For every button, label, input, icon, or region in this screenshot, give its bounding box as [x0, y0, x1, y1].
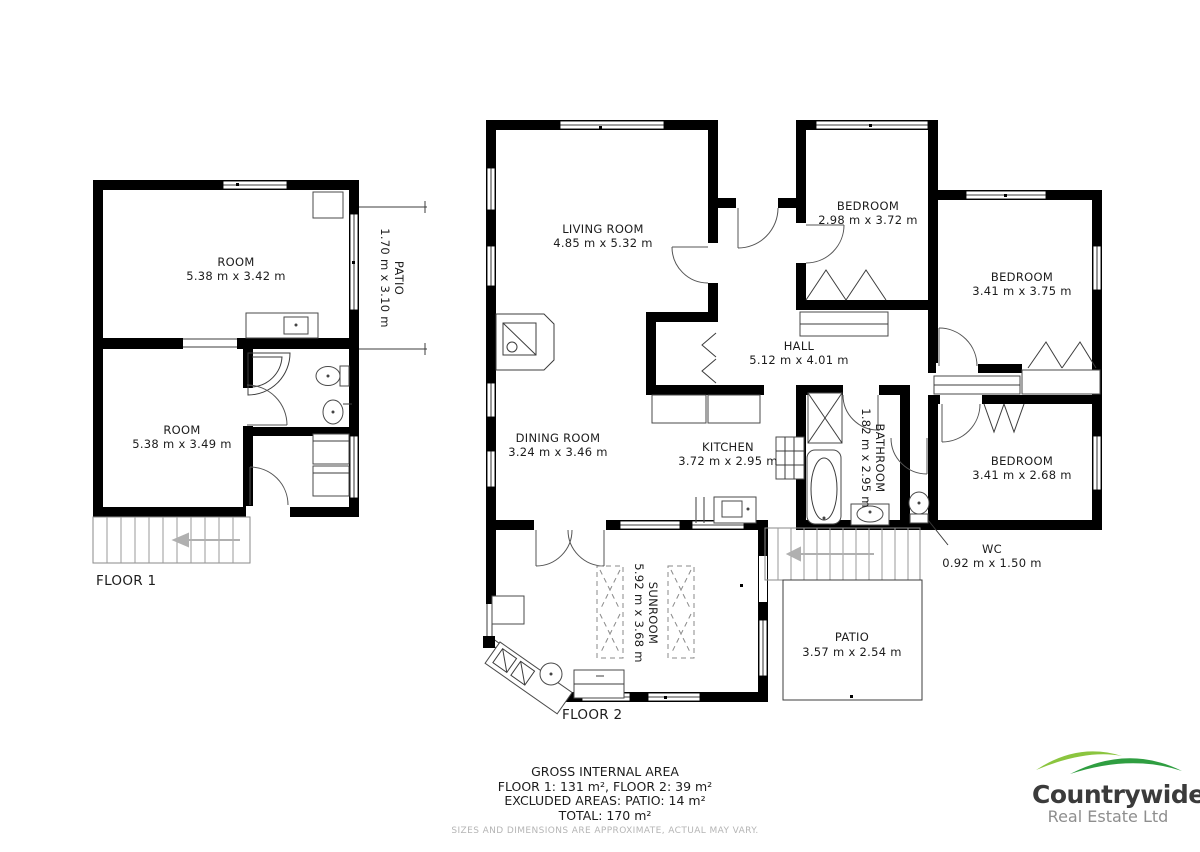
stairs-direction-arrow	[174, 534, 240, 546]
agency-logo: Countrywide Real Estate Ltd	[1032, 740, 1184, 826]
floor1-stairs	[93, 517, 250, 563]
sunroom-closet	[492, 596, 524, 624]
area-summary: GROSS INTERNAL AREA FLOOR 1: 131 m², FLO…	[385, 765, 825, 836]
hall-dims: 5.12 m x 4.01 m	[749, 353, 849, 367]
total-area-line: TOTAL: 170 m²	[385, 809, 825, 824]
bedroom-left-dims: 2.98 m x 3.72 m	[818, 213, 918, 227]
floor1-room-bottom-name: ROOM	[163, 423, 200, 437]
bathroom-name: BATHROOM	[873, 424, 887, 493]
sunroom-name: SUNROOM	[646, 582, 660, 644]
sunroom-sink-fixture	[540, 663, 562, 685]
front-door	[738, 208, 778, 248]
kitchen-dims: 3.72 m x 2.95 m	[678, 454, 778, 468]
floor2-label: FLOOR 2	[562, 707, 622, 723]
bedroom-bottom-right-bifold	[984, 404, 1024, 432]
floor1-plan: ROOM 5.38 m x 3.42 m ROOM 5.38 m x 3.49 …	[93, 180, 427, 589]
living-room-door	[672, 247, 708, 283]
disclaimer-text: SIZES AND DIMENSIONS ARE APPROXIMATE, AC…	[385, 826, 825, 836]
bedroom-bottom-right-dims: 3.41 m x 2.68 m	[972, 468, 1072, 482]
floor1-room-top-dims: 5.38 m x 3.42 m	[186, 269, 286, 283]
kitchen-name: KITCHEN	[702, 440, 754, 454]
living-room-dims: 4.85 m x 5.32 m	[553, 236, 653, 250]
bedroom-top-right-door	[939, 328, 977, 366]
dining-room-name: DINING ROOM	[516, 431, 601, 445]
wc-toilet-fixture	[909, 492, 929, 523]
kitchen-sink-fixture	[696, 497, 756, 523]
gross-internal-area-title: GROSS INTERNAL AREA	[385, 765, 825, 780]
hall-name: HALL	[784, 339, 815, 353]
excluded-areas-line: EXCLUDED AREAS: PATIO: 14 m²	[385, 794, 825, 809]
wc-dims: 0.92 m x 1.50 m	[942, 556, 1042, 570]
sunroom-dims: 5.92 m x 3.68 m	[632, 563, 646, 663]
bedroom-bottom-right-door	[942, 404, 980, 442]
kitchen-counter	[652, 395, 760, 423]
bedroom-bottom-right-name: BEDROOM	[991, 454, 1053, 468]
wc-name: WC	[982, 542, 1002, 556]
floor1-room-top-name: ROOM	[217, 255, 254, 269]
logo-subtitle: Real Estate Ltd	[1032, 808, 1184, 826]
floor2-stairs	[765, 528, 920, 580]
stove-fixture	[776, 437, 804, 479]
floorplan-page: { "floor1": { "label": "FLOOR 1", "room_…	[0, 0, 1200, 848]
hall-sliding-closet	[934, 376, 1020, 394]
floor1-entry-door	[250, 467, 288, 505]
dining-room-dims: 3.24 m x 3.46 m	[508, 445, 608, 459]
bedroom-top-right-dims: 3.41 m x 3.75 m	[972, 284, 1072, 298]
floor1-closet-top-right	[313, 192, 343, 218]
floor1-closet-bottom-right	[313, 434, 349, 496]
bedroom-left-door	[806, 225, 844, 263]
fireplace-fixture	[496, 314, 554, 370]
floor1-patio-name: PATIO	[392, 261, 406, 295]
floor1-room-bottom-dims: 5.38 m x 3.49 m	[132, 437, 232, 451]
sunroom-bench	[574, 670, 624, 698]
floor1-label: FLOOR 1	[96, 573, 156, 589]
shower-fixture	[808, 393, 842, 443]
bedroom-top-right-wardrobe	[1022, 342, 1100, 394]
sunroom-french-doors	[536, 530, 604, 566]
floor2-patio-name: PATIO	[835, 630, 869, 644]
stairs-direction-arrow	[788, 548, 874, 560]
bathroom-dims: 1.82 m x 2.95 m	[859, 408, 873, 508]
floor1-toilet-fixture	[316, 366, 349, 386]
floor1-basin-fixture	[323, 400, 352, 424]
bedroom-left-name: BEDROOM	[837, 199, 899, 213]
floorplan-drawing: ROOM 5.38 m x 3.42 m ROOM 5.38 m x 3.49 …	[0, 0, 1200, 848]
bathtub-fixture	[807, 450, 841, 524]
bedroom-top-right-name: BEDROOM	[991, 270, 1053, 284]
floor1-patio-dims: 1.70 m x 3.10 m	[378, 228, 392, 328]
floor1-shower-fixture	[248, 353, 290, 395]
hall-closet-bifold	[702, 333, 716, 383]
living-room-name: LIVING ROOM	[562, 222, 644, 236]
logo-hills-icon	[1032, 740, 1184, 778]
floor1-vanity-sink	[246, 313, 318, 338]
floor-areas-line: FLOOR 1: 131 m², FLOOR 2: 39 m²	[385, 780, 825, 795]
floor2-patio-dims: 3.57 m x 2.54 m	[802, 645, 902, 659]
logo-name: Countrywide	[1032, 782, 1184, 808]
